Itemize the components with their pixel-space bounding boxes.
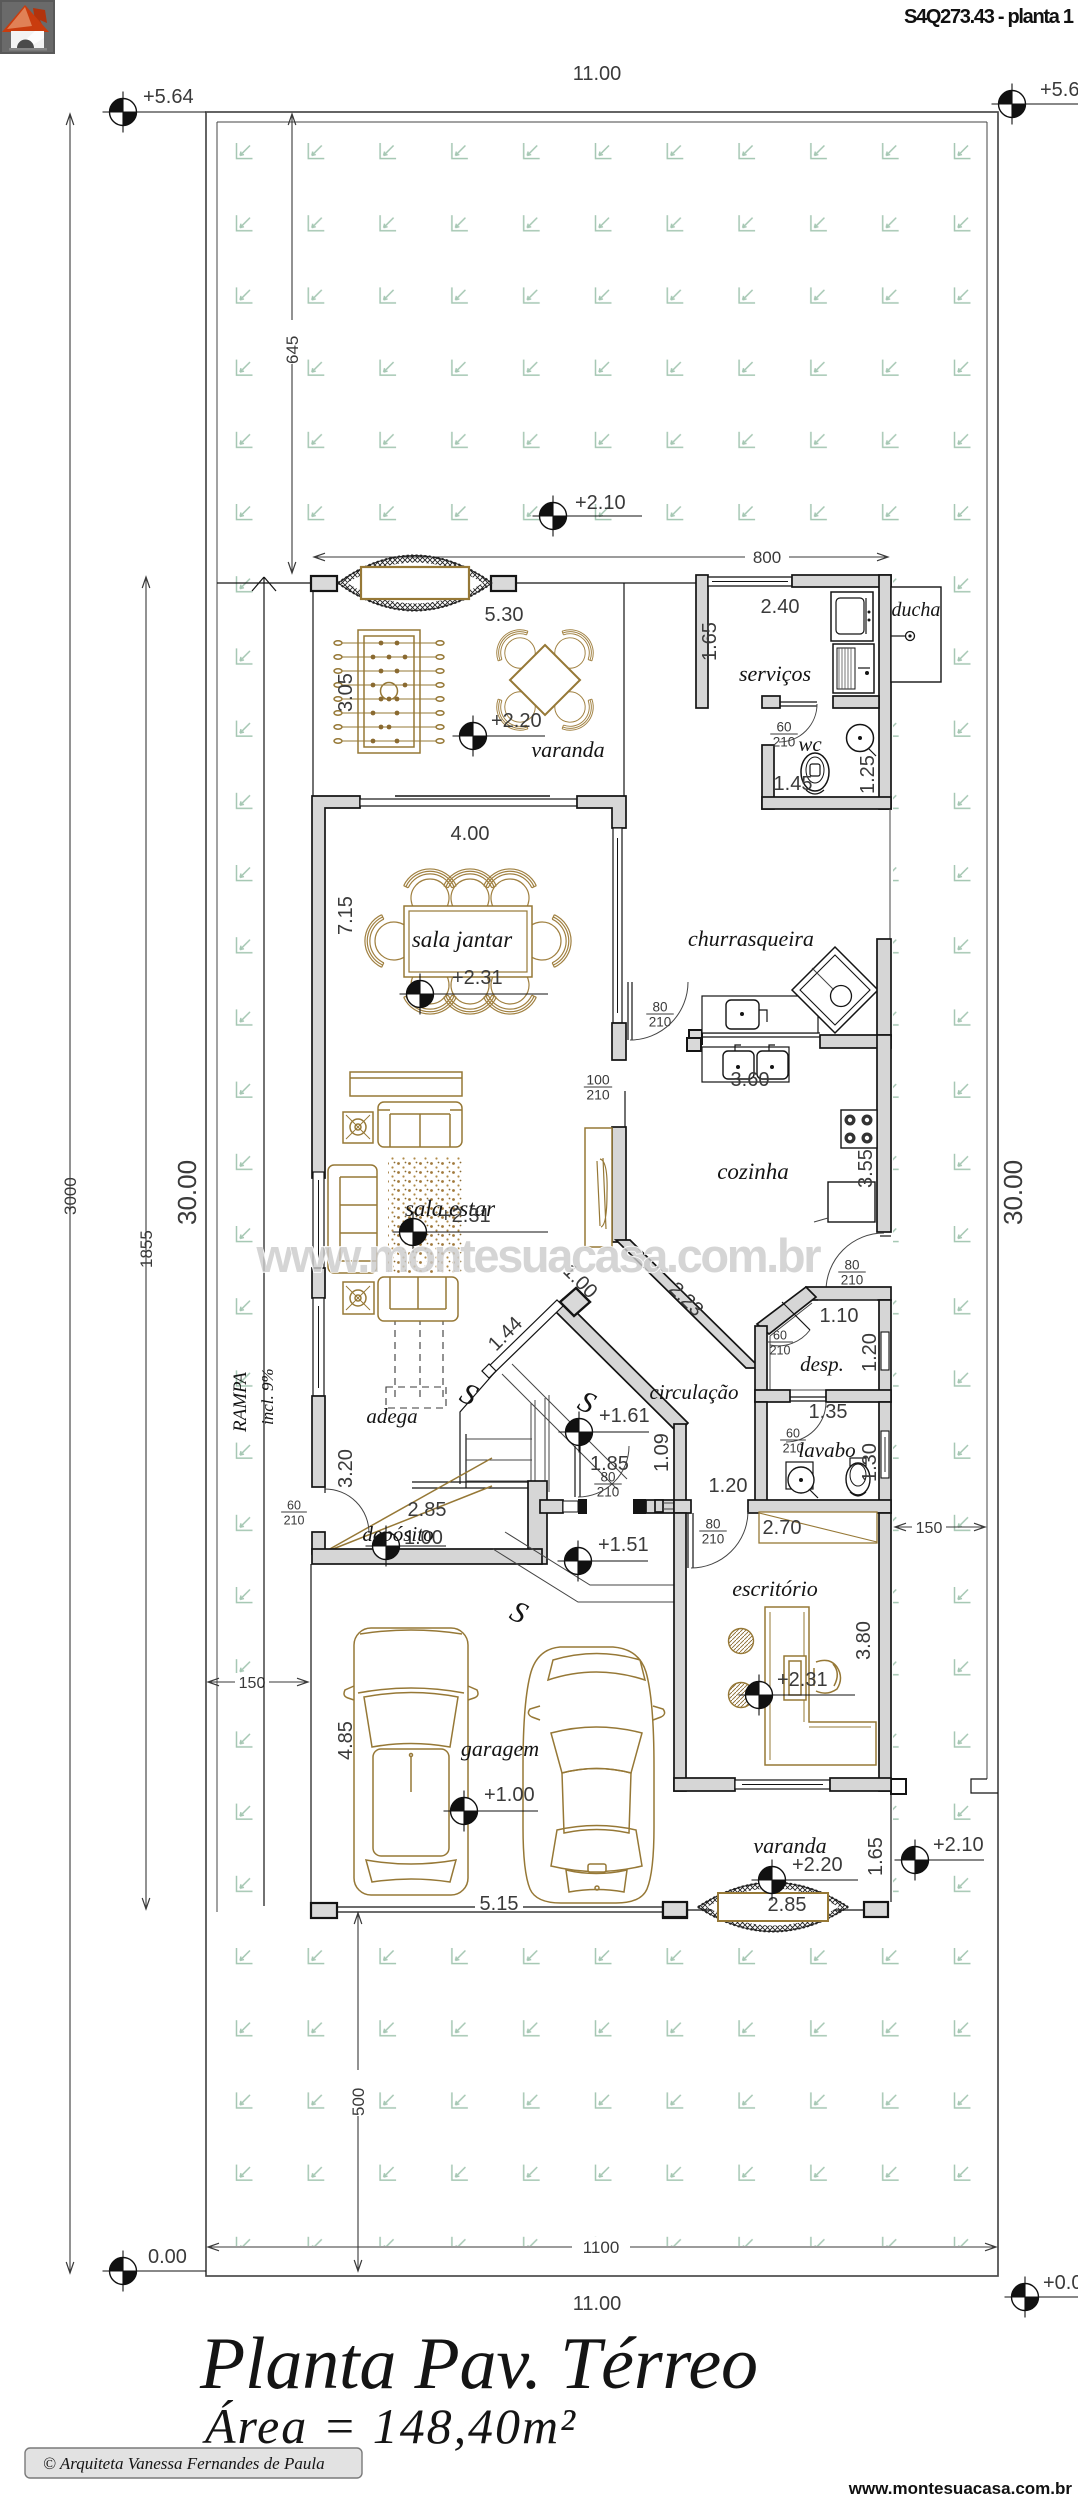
svg-text:lavabo: lavabo (798, 1438, 855, 1462)
svg-text:210: 210 (284, 1514, 305, 1528)
svg-text:3000: 3000 (61, 1177, 80, 1215)
svg-text:+2.31: +2.31 (452, 967, 503, 989)
svg-text:11.00: 11.00 (573, 2293, 622, 2315)
svg-text:ducha: ducha (892, 599, 941, 621)
svg-text:depósito: depósito (362, 1522, 433, 1546)
svg-text:garagem: garagem (461, 1736, 539, 1761)
svg-text:210: 210 (597, 1485, 620, 1500)
svg-text:+2.10: +2.10 (933, 1834, 984, 1856)
svg-text:RAMPA: RAMPA (230, 1372, 251, 1433)
svg-text:2.85: 2.85 (408, 1499, 447, 1521)
svg-text:Planta Pav. Térreo: Planta Pav. Térreo (199, 2323, 758, 2405)
svg-text:60: 60 (287, 1499, 301, 1513)
svg-text:210: 210 (770, 1344, 791, 1358)
svg-text:serviços: serviços (739, 661, 811, 686)
svg-text:Área = 148,40m²: Área = 148,40m² (202, 2398, 576, 2454)
svg-text:3.55: 3.55 (855, 1149, 877, 1188)
svg-text:churrasqueira: churrasqueira (688, 926, 814, 951)
svg-text:3.05: 3.05 (335, 673, 357, 712)
svg-text:210: 210 (841, 1273, 864, 1288)
svg-text:0.00: 0.00 (148, 2246, 187, 2268)
svg-text:150: 150 (916, 1520, 943, 1537)
svg-text:1.10: 1.10 (820, 1305, 859, 1327)
svg-text:+0.0: +0.0 (1043, 2272, 1078, 2294)
svg-text:30.00: 30.00 (172, 1160, 202, 1225)
svg-text:escritório: escritório (732, 1576, 818, 1601)
svg-text:+2.20: +2.20 (491, 710, 542, 732)
svg-text:100: 100 (586, 1072, 610, 1088)
svg-text:adega: adega (366, 1404, 417, 1428)
svg-text:+1.00: +1.00 (484, 1784, 535, 1806)
svg-text:1.65: 1.65 (699, 622, 721, 661)
svg-text:500: 500 (349, 2088, 368, 2116)
svg-text:+5.64: +5.64 (143, 86, 194, 108)
svg-text:30.00: 30.00 (998, 1160, 1028, 1225)
svg-text:210: 210 (702, 1532, 725, 1547)
svg-text:80: 80 (652, 1000, 667, 1015)
svg-text:1855: 1855 (137, 1230, 156, 1268)
svg-text:+1.51: +1.51 (598, 1534, 649, 1556)
svg-text:+2.10: +2.10 (575, 492, 626, 514)
svg-text:7.15: 7.15 (335, 896, 357, 935)
svg-text:210: 210 (773, 735, 796, 750)
svg-text:1.85: 1.85 (590, 1453, 629, 1475)
svg-text:2.85: 2.85 (768, 1894, 807, 1916)
svg-text:60: 60 (776, 720, 791, 735)
svg-text:cozinha: cozinha (717, 1159, 789, 1184)
svg-text:+2.31: +2.31 (777, 1669, 828, 1691)
svg-text:5.15: 5.15 (480, 1893, 519, 1915)
svg-text:+1.61: +1.61 (599, 1405, 650, 1427)
svg-text:+5.64: +5.64 (1040, 79, 1078, 101)
svg-text:1.65: 1.65 (865, 1837, 887, 1876)
svg-text:1.20: 1.20 (709, 1475, 748, 1497)
svg-text:incl. 9%: incl. 9% (258, 1368, 277, 1425)
svg-text:varanda: varanda (531, 737, 604, 762)
svg-text:210: 210 (586, 1087, 610, 1103)
svg-text:4.00: 4.00 (451, 823, 490, 845)
svg-text:S4Q273.43 - planta 1: S4Q273.43 - planta 1 (904, 6, 1074, 28)
svg-text:80: 80 (705, 1517, 720, 1532)
svg-text:2.70: 2.70 (763, 1517, 802, 1539)
svg-text:3.60: 3.60 (731, 1069, 770, 1091)
svg-text:circulação: circulação (649, 1380, 738, 1404)
svg-text:1.09: 1.09 (651, 1433, 673, 1472)
svg-text:800: 800 (753, 548, 781, 567)
svg-text:11.00: 11.00 (573, 63, 622, 85)
svg-text:5.30: 5.30 (485, 604, 524, 626)
svg-text:1.45: 1.45 (774, 773, 813, 795)
svg-text:150: 150 (239, 1675, 266, 1692)
svg-text:1100: 1100 (583, 2238, 620, 2257)
svg-text:1.35: 1.35 (809, 1401, 848, 1423)
svg-text:3.80: 3.80 (853, 1621, 875, 1660)
svg-text:645: 645 (283, 336, 302, 364)
svg-text:+2.31: +2.31 (440, 1205, 491, 1227)
svg-text:80: 80 (844, 1258, 859, 1273)
svg-text:1.25: 1.25 (857, 755, 879, 794)
svg-text:www.montesuacasa.com.br: www.montesuacasa.com.br (256, 1229, 822, 1282)
svg-text:+2.20: +2.20 (792, 1854, 843, 1876)
svg-text:wc: wc (798, 732, 822, 756)
svg-text:60: 60 (773, 1329, 787, 1343)
svg-text:www.montesuacasa.com.br: www.montesuacasa.com.br (848, 2479, 1073, 2498)
svg-text:1.20: 1.20 (859, 1333, 881, 1372)
svg-text:3.20: 3.20 (335, 1449, 357, 1488)
svg-text:210: 210 (649, 1015, 672, 1030)
svg-text:desp.: desp. (800, 1352, 844, 1376)
svg-text:sala jantar: sala jantar (412, 927, 513, 952)
svg-text:1.30: 1.30 (859, 1443, 881, 1482)
svg-text:2.40: 2.40 (761, 596, 800, 618)
svg-text:© Arquiteta Vanessa Fernandes: © Arquiteta Vanessa Fernandes de Paula (43, 2454, 325, 2473)
